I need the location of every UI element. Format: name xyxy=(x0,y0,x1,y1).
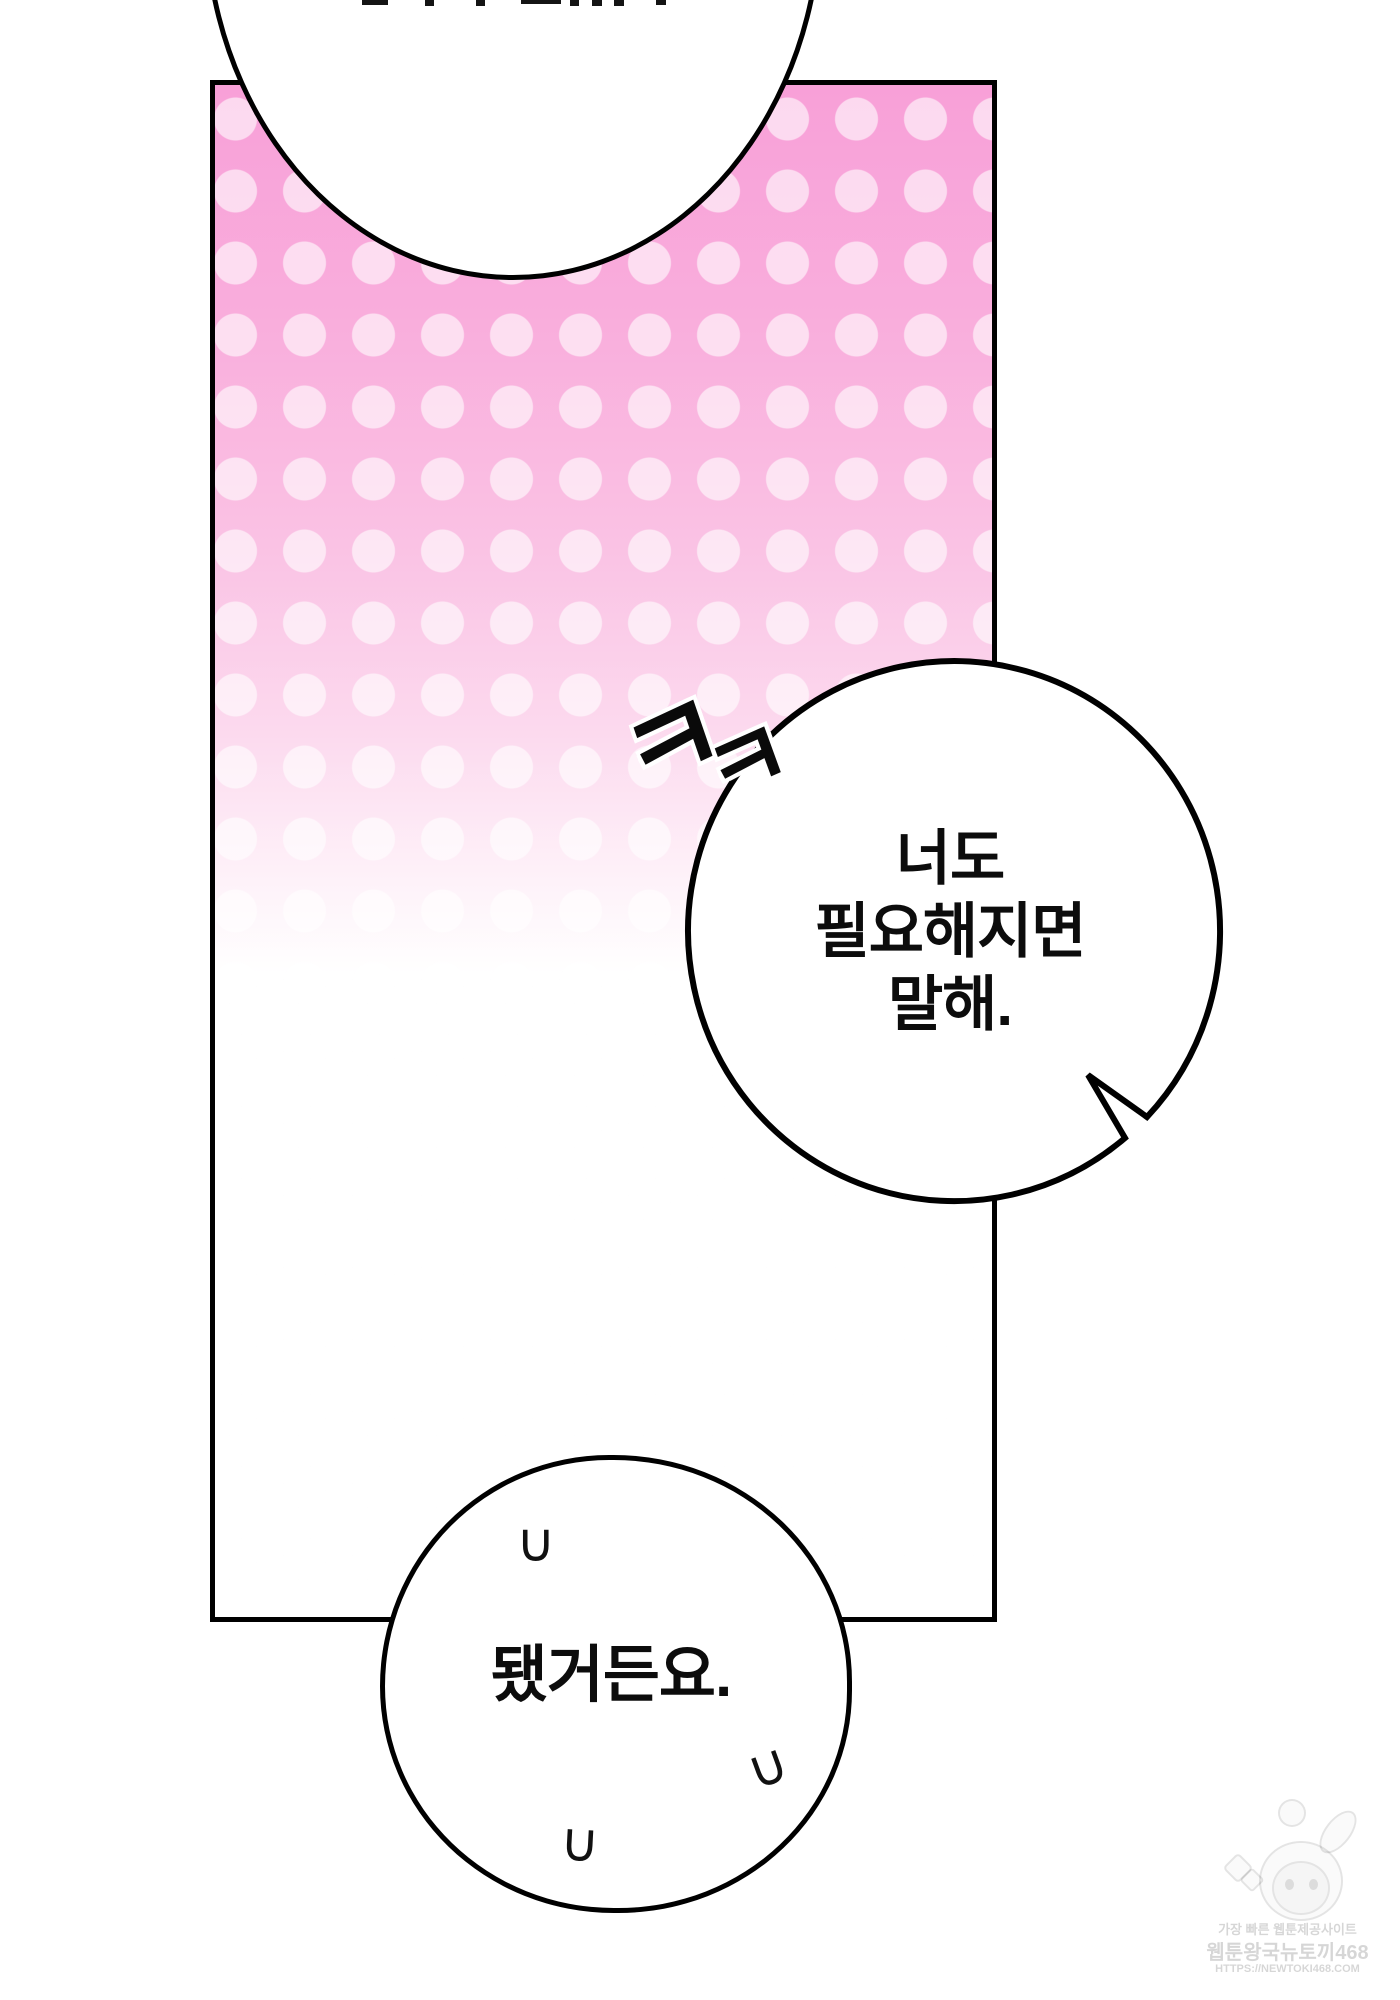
mascot-face-icon xyxy=(1272,1861,1330,1915)
mascot-eye-icon xyxy=(1285,1879,1294,1890)
mascot-eye-icon xyxy=(1309,1879,1318,1890)
cutoff-glyph-fragment xyxy=(476,0,485,6)
cutoff-glyph-fragment xyxy=(656,0,666,5)
speech-line: 필요해지면 xyxy=(695,895,1205,968)
cutoff-glyph-fragment xyxy=(425,0,434,6)
site-watermark: 가장 빠른 웹툰제공사이트 웹툰왕국뉴토끼468 HTTPS://NEWTOKI… xyxy=(1175,1795,1400,1995)
cutoff-glyph-fragment xyxy=(614,0,624,6)
speech-line: 말해. xyxy=(695,968,1205,1041)
sweat-mark: ∪ xyxy=(516,1516,556,1570)
watermark-sitename: 웹툰왕국뉴토끼468 xyxy=(1175,1936,1400,1965)
cutoff-glyph-fragment xyxy=(521,0,561,4)
bottom-speech-text: 됐거든요. xyxy=(395,1645,827,1707)
watermark-url: HTTPS://NEWTOKI468.COM xyxy=(1175,1963,1400,1975)
mascot-hair-curl-icon xyxy=(1278,1799,1306,1827)
cutoff-glyph-fragment xyxy=(592,0,602,6)
sweat-mark: ∪ xyxy=(559,1815,601,1871)
comic-page: { "panel": { "border_color": "#000000", … xyxy=(0,0,1400,2000)
cutoff-glyph-fragment xyxy=(570,0,579,6)
right-speech-text: 너도 필요해지면 말해. xyxy=(695,822,1205,1041)
cutoff-glyph-fragment xyxy=(362,0,388,5)
speech-line: 너도 xyxy=(695,822,1205,895)
